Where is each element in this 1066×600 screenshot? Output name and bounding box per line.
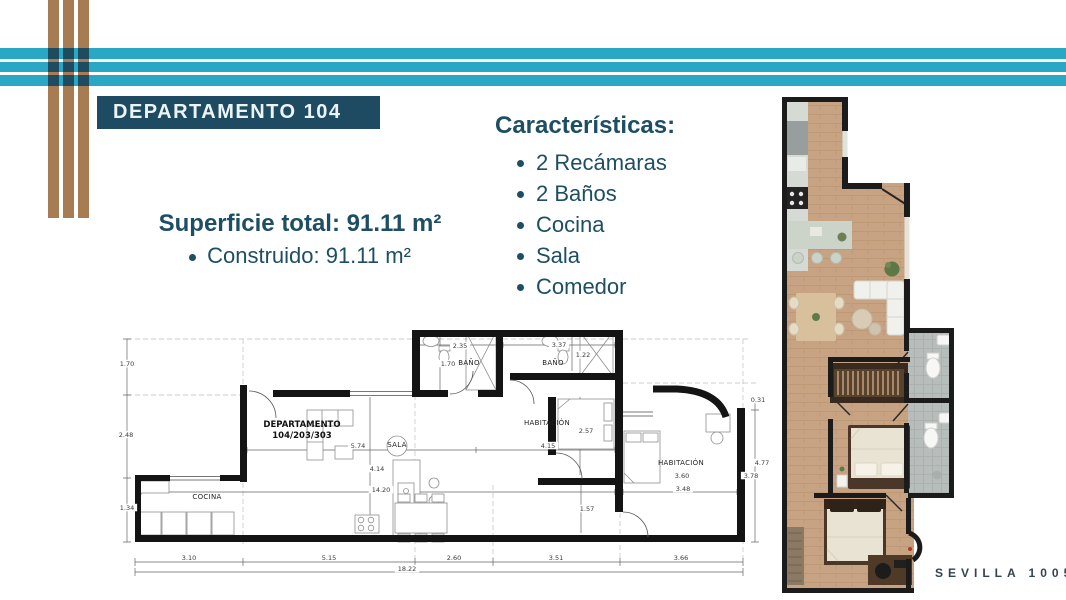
brown-bar bbox=[48, 0, 59, 218]
dimension-label: 3.37 bbox=[552, 341, 566, 349]
room-label: BAÑO bbox=[542, 358, 564, 367]
surface-item-label: Construido: 91.11 m² bbox=[207, 243, 411, 269]
room-label: DEPARTAMENTO bbox=[263, 420, 340, 430]
dimension-label: 3.48 bbox=[676, 485, 690, 493]
dimension-label: 3.78 bbox=[744, 472, 758, 480]
feature-item: 2 Recámaras bbox=[495, 147, 675, 178]
dimension-label: 2.35 bbox=[453, 342, 467, 350]
cyan-stripe bbox=[0, 62, 1066, 72]
surface-block: Superficie total: 91.11 m² Construido: 9… bbox=[100, 210, 500, 269]
cyan-stripe bbox=[0, 48, 1066, 59]
weave-intersection-squares bbox=[48, 48, 89, 86]
slide-canvas: DEPARTAMENTO 104 Superficie total: 91.11… bbox=[0, 0, 1066, 600]
dimension-label: 1.57 bbox=[580, 505, 594, 513]
bullet-dot-icon bbox=[517, 160, 524, 167]
dimension-label: 3.10 bbox=[182, 554, 196, 562]
dimension-label: 3.60 bbox=[675, 472, 689, 480]
dimension-label: 4.14 bbox=[370, 465, 384, 473]
dimension-label: 4.77 bbox=[755, 459, 769, 467]
dimension-label: 14.20 bbox=[372, 486, 391, 494]
dimension-label: 1.70 bbox=[120, 360, 134, 368]
project-name-label: SEVILLA 1005 bbox=[935, 566, 1060, 580]
room-label: HABITACIÓN bbox=[658, 458, 704, 467]
blueprint-furniture bbox=[137, 332, 730, 542]
feature-item: Cocina bbox=[495, 209, 675, 240]
feature-item-label: Sala bbox=[536, 240, 580, 271]
room-label: BAÑO bbox=[458, 358, 480, 367]
dimension-label: 1.70 bbox=[441, 360, 455, 368]
feature-item-label: 2 Recámaras bbox=[536, 147, 667, 178]
feature-item: Comedor bbox=[495, 271, 675, 302]
blueprint-floorplan: 1.702.481.342.351.703.371.225.744.154.14… bbox=[110, 315, 770, 600]
room-label: 104/203/303 bbox=[272, 431, 332, 441]
feature-item-label: 2 Baños bbox=[536, 178, 617, 209]
feature-item-label: Cocina bbox=[536, 209, 604, 240]
page-title: DEPARTAMENTO 104 bbox=[113, 101, 341, 124]
room-label: HABITACIÓN bbox=[524, 418, 570, 427]
rendered-floorplan bbox=[780, 97, 960, 597]
dimension-label: 5.15 bbox=[322, 554, 336, 562]
bullet-dot-icon bbox=[189, 254, 196, 261]
room-label: SALA bbox=[387, 441, 406, 449]
surface-heading: Superficie total: 91.11 m² bbox=[100, 210, 500, 238]
bullet-dot-icon bbox=[517, 222, 524, 229]
features-heading: Características: bbox=[495, 112, 675, 140]
room-label: COCINA bbox=[192, 493, 221, 501]
bullet-dot-icon bbox=[517, 284, 524, 291]
dimension-label: 2.57 bbox=[579, 427, 593, 435]
dimension-label: 1.22 bbox=[576, 351, 590, 359]
dimension-label: 2.60 bbox=[447, 554, 461, 562]
brown-bar bbox=[63, 0, 74, 218]
bullet-dot-icon bbox=[517, 253, 524, 260]
title-box: DEPARTAMENTO 104 bbox=[97, 96, 380, 129]
dimension-label: 18.22 bbox=[398, 565, 417, 573]
feature-item: Sala bbox=[495, 240, 675, 271]
dimension-label: 1.34 bbox=[120, 504, 134, 512]
dimension-label: 3.66 bbox=[674, 554, 688, 562]
feature-item: 2 Baños bbox=[495, 178, 675, 209]
dimension-label: 0.31 bbox=[751, 396, 765, 404]
feature-item-label: Comedor bbox=[536, 271, 626, 302]
dimension-label: 2.48 bbox=[119, 431, 133, 439]
dimension-label: 3.51 bbox=[549, 554, 563, 562]
dimension-label: 4.15 bbox=[541, 442, 555, 450]
surface-item: Construido: 91.11 m² bbox=[100, 243, 500, 269]
dimension-label: 5.74 bbox=[351, 442, 365, 450]
bullet-dot-icon bbox=[517, 191, 524, 198]
brown-bar bbox=[78, 0, 89, 218]
cyan-stripe bbox=[0, 75, 1066, 86]
features-block: Características: 2 Recámaras2 BañosCocin… bbox=[495, 112, 675, 302]
features-list: 2 Recámaras2 BañosCocinaSalaComedor bbox=[495, 147, 675, 302]
